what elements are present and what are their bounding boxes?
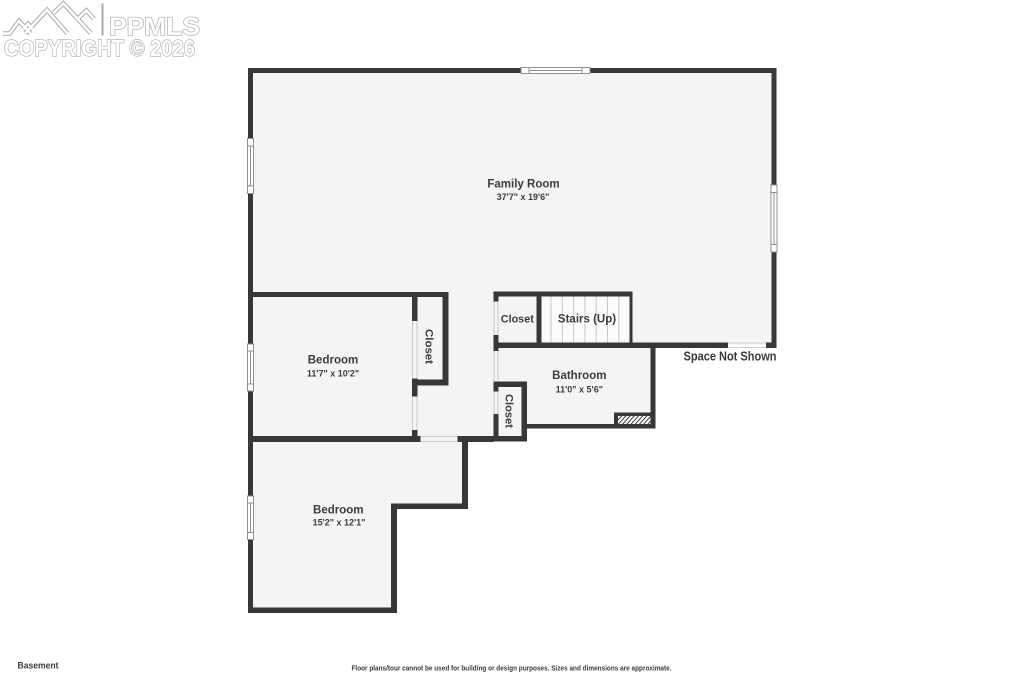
svg-text:COPYRIGHT © 2026: COPYRIGHT © 2026 bbox=[4, 35, 195, 61]
svg-text:Bedroom: Bedroom bbox=[313, 505, 363, 517]
svg-text:Floor plans/tour cannot be use: Floor plans/tour cannot be used for buil… bbox=[352, 664, 672, 673]
svg-text:Stairs (Up): Stairs (Up) bbox=[558, 314, 616, 326]
svg-text:Closet: Closet bbox=[423, 329, 435, 364]
svg-text:Closet: Closet bbox=[503, 394, 515, 428]
svg-text:Bathroom: Bathroom bbox=[552, 370, 606, 382]
svg-text:11'0" x 5'6": 11'0" x 5'6" bbox=[556, 385, 603, 395]
svg-text:Basement: Basement bbox=[18, 661, 60, 672]
svg-text:15'2" x 12'1": 15'2" x 12'1" bbox=[313, 518, 366, 528]
svg-text:Family Room: Family Room bbox=[487, 179, 559, 191]
svg-text:Bedroom: Bedroom bbox=[308, 355, 358, 367]
svg-text:11'7" x 10'2": 11'7" x 10'2" bbox=[307, 369, 359, 379]
svg-text:Space Not Shown: Space Not Shown bbox=[684, 350, 777, 364]
svg-text:Closet: Closet bbox=[501, 313, 534, 325]
svg-text:37'7" x 19'6": 37'7" x 19'6" bbox=[497, 192, 550, 202]
